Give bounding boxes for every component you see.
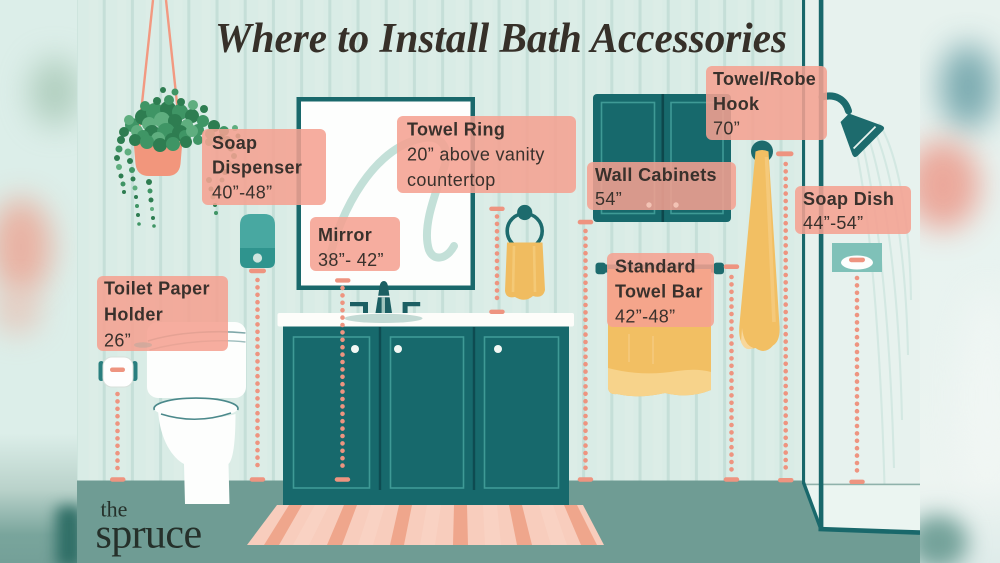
svg-text:Hook: Hook: [713, 94, 760, 114]
svg-text:Towel/Robe: Towel/Robe: [713, 69, 816, 89]
svg-text:26”: 26”: [104, 331, 131, 351]
svg-text:countertop: countertop: [407, 170, 496, 190]
svg-text:54”: 54”: [595, 189, 622, 209]
svg-text:44”-54”: 44”-54”: [803, 213, 863, 233]
svg-text:38”- 42”: 38”- 42”: [318, 250, 384, 270]
svg-text:Soap Dish: Soap Dish: [803, 189, 894, 209]
svg-text:70”: 70”: [713, 119, 740, 139]
svg-text:Standard: Standard: [615, 257, 696, 277]
svg-text:Mirror: Mirror: [318, 225, 372, 245]
svg-text:Soap: Soap: [212, 133, 257, 153]
svg-text:Where to Install Bath Accessor: Where to Install Bath Accessories: [215, 16, 787, 62]
svg-text:42”-48”: 42”-48”: [615, 307, 675, 327]
svg-text:40”-48”: 40”-48”: [212, 183, 272, 203]
svg-text:Wall Cabinets: Wall Cabinets: [595, 165, 717, 185]
svg-text:Towel Bar: Towel Bar: [615, 282, 703, 302]
svg-text:Dispenser: Dispenser: [212, 158, 302, 178]
svg-text:Toilet Paper: Toilet Paper: [104, 279, 210, 299]
svg-text:Towel Ring: Towel Ring: [407, 120, 505, 140]
svg-text:Holder: Holder: [104, 305, 163, 325]
svg-text:20” above vanity: 20” above vanity: [407, 145, 545, 165]
svg-text:spruce: spruce: [96, 512, 202, 558]
